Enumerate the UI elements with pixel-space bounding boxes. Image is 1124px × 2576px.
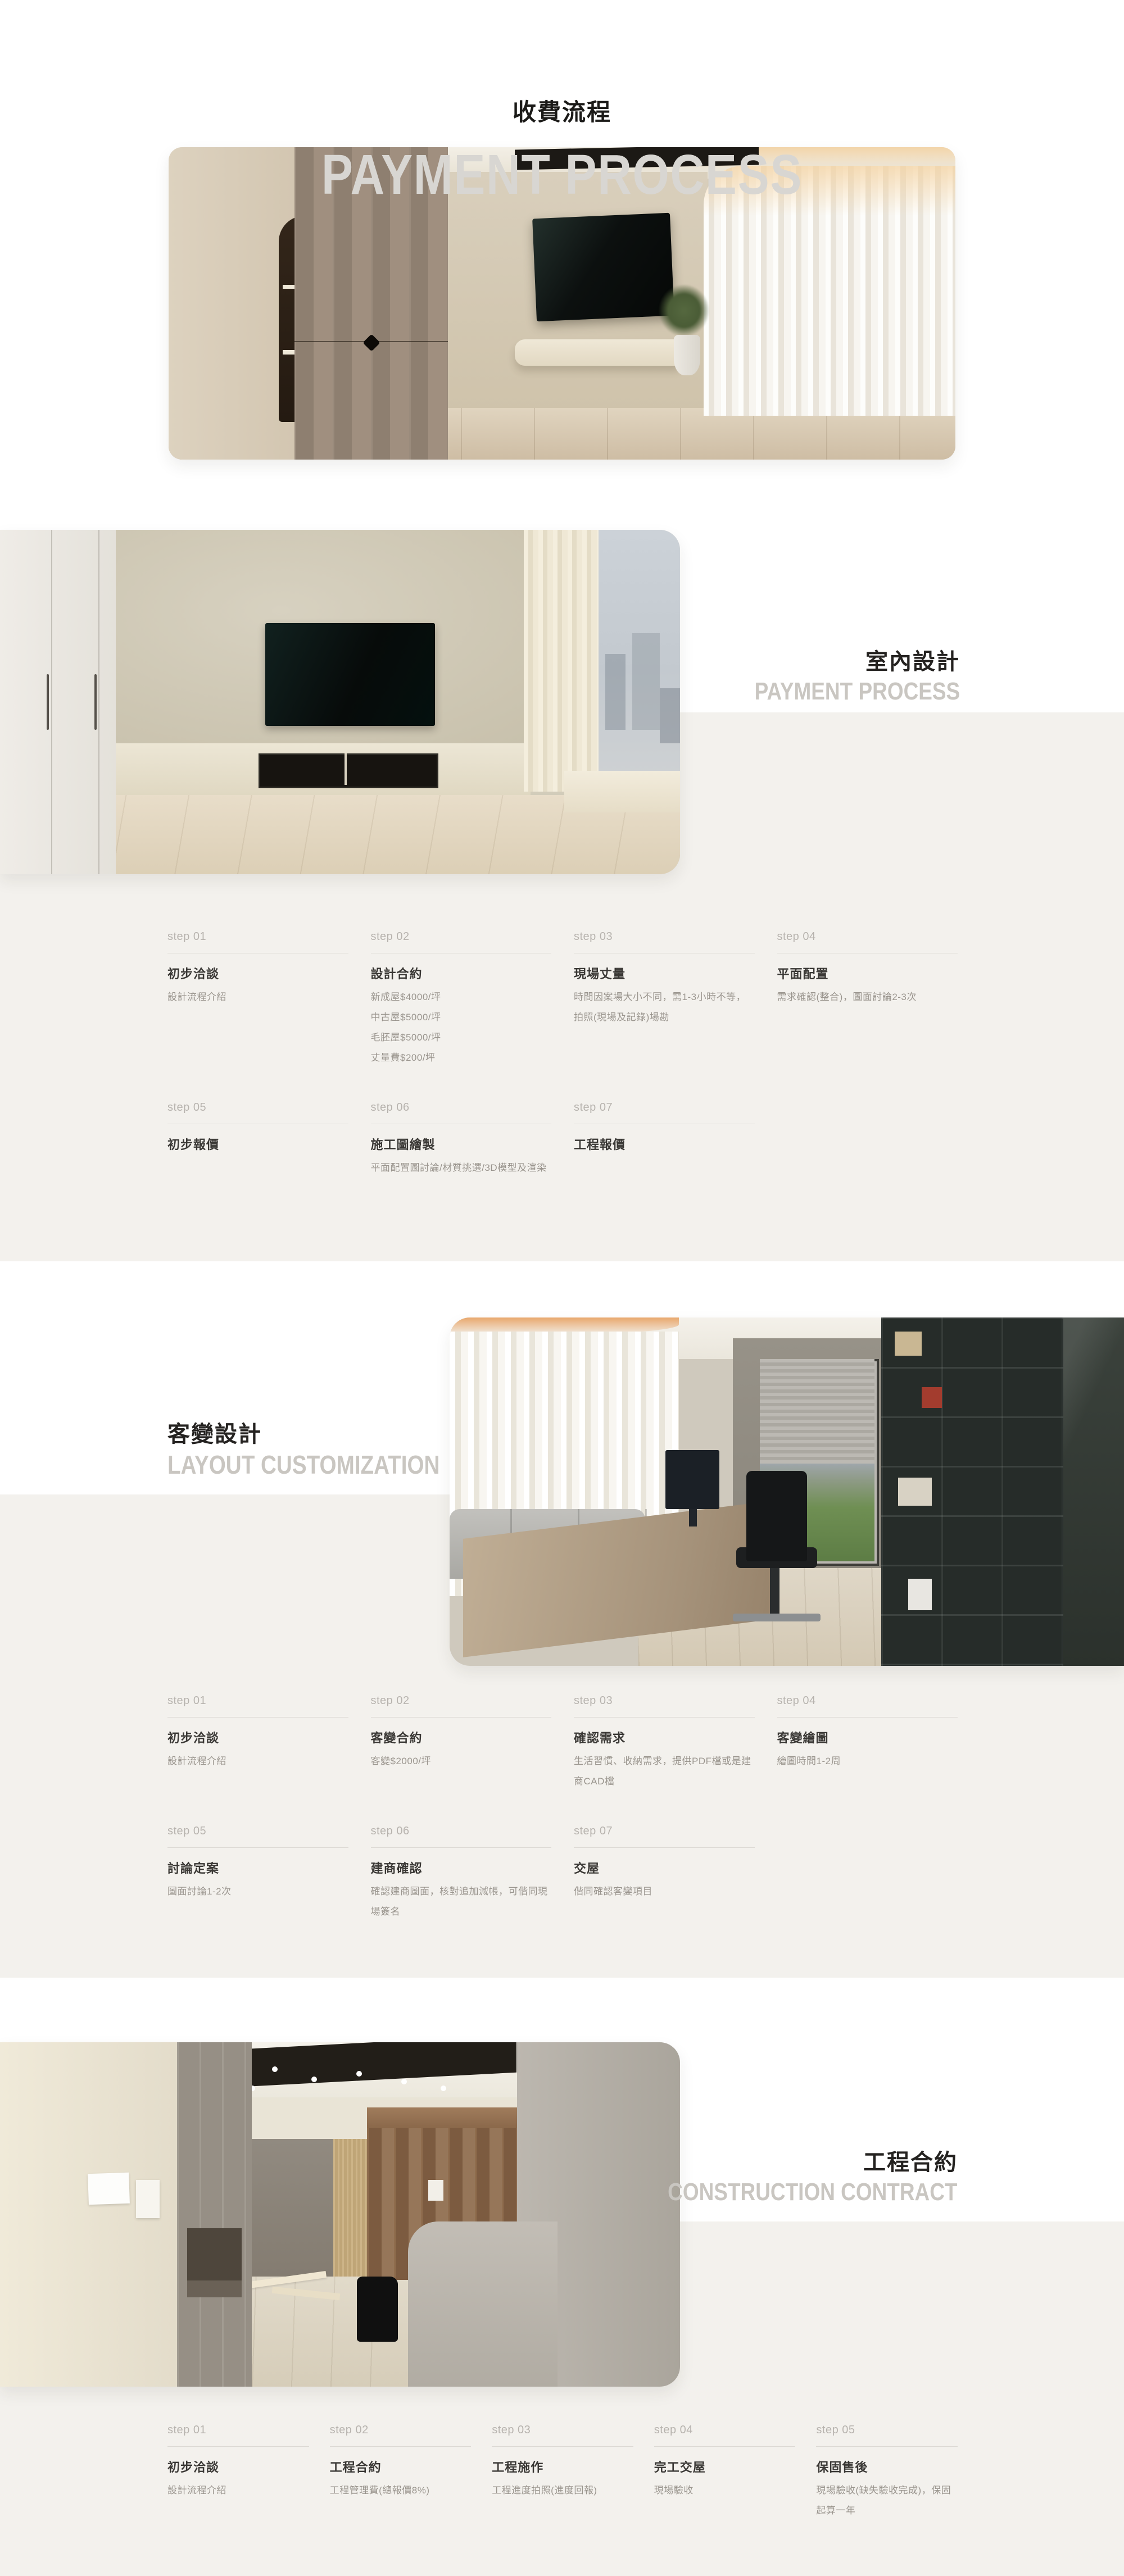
step-card: step 04 客變繪圖 繪圖時間1-2周 <box>777 1694 958 1771</box>
step-description-line: 毛胚屋$5000/坪 <box>371 1028 552 1048</box>
step-description: 設計流程介紹 <box>167 2480 309 2501</box>
step-description: 現場驗收 <box>654 2480 796 2501</box>
step-description: 時間因案場大小不同，需1-3小時不等，拍照(現場及記錄)場勘 <box>574 987 755 1028</box>
step-divider-line <box>371 953 552 953</box>
step-number-label: step 01 <box>167 2423 309 2437</box>
step-description-line: 圖面討論1-2次 <box>167 1882 348 1902</box>
photo-building-silhouette <box>632 633 659 730</box>
step-number-label: step 02 <box>371 930 552 943</box>
step-description-line: 新成屋$4000/坪 <box>371 987 552 1007</box>
step-title: 初步洽談 <box>167 966 348 983</box>
photo-honeycomb-blind <box>760 1359 874 1464</box>
step-description: 客變$2000/坪 <box>371 1751 552 1771</box>
step-number-label: step 02 <box>371 1694 552 1707</box>
section-title-block: 工程合約 CONSTRUCTION CONTRACT <box>613 2150 958 2205</box>
step-divider-line <box>574 1847 755 1848</box>
interior-design-photo <box>0 530 680 874</box>
step-card: step 02 客變合約 客變$2000/坪 <box>371 1694 552 1771</box>
photo-wall-tv <box>265 623 436 726</box>
photo-gray-cabinet <box>177 2042 252 2387</box>
photo-wood-slats <box>333 2139 368 2277</box>
step-description-line: 丈量費$200/坪 <box>371 1048 552 1068</box>
photo-curtain <box>524 530 599 792</box>
step-number-label: step 07 <box>574 1824 755 1838</box>
photo-curved-partition <box>408 2221 558 2387</box>
step-title: 確認需求 <box>574 1730 755 1747</box>
step-title: 保固售後 <box>816 2459 958 2476</box>
construction-contract-photo <box>0 2042 680 2387</box>
step-number-label: step 07 <box>574 1101 755 1114</box>
step-number-label: step 03 <box>574 930 755 943</box>
step-description-line: 確認建商圖面，核對追加減帳，可偕同現場簽名 <box>371 1882 552 1922</box>
step-description-line: 生活習慣、收納需求，提供PDF檔或是建商CAD檔 <box>574 1751 755 1792</box>
section-title-block: 客變設計 LAYOUT CUSTOMIZATION <box>167 1421 492 1478</box>
step-description: 偕同確認客變項目 <box>574 1882 755 1902</box>
step-description-line: 時間因案場大小不同，需1-3小時不等，拍照(現場及記錄)場勘 <box>574 987 755 1028</box>
section-layout-customization: 客變設計 LAYOUT CUSTOMIZATION step 01 初步洽談 設… <box>0 1315 1124 1978</box>
step-description: 工程進度拍照(進度回報) <box>492 2480 633 2501</box>
step-number-label: step 06 <box>371 1101 552 1114</box>
step-divider-line <box>371 1847 552 1848</box>
step-description-line: 工程管理費(總報價8%) <box>330 2480 472 2501</box>
page-subtitle-en: PAYMENT PROCESS <box>90 143 1034 207</box>
step-card: step 06 施工圖繪製 平面配置圖討論/材質挑選/3D模型及渲染 <box>371 1101 552 1178</box>
step-description: 繪圖時間1-2周 <box>777 1751 958 1771</box>
step-divider-line <box>167 2446 309 2447</box>
photo-cabinet-shelf <box>187 2228 242 2297</box>
step-card: step 07 工程報價 <box>574 1101 755 1158</box>
photo-shelf-object <box>908 1579 932 1610</box>
step-number-label: step 02 <box>330 2423 472 2437</box>
step-description-line: 設計流程介紹 <box>167 987 348 1007</box>
section-title-en: PAYMENT PROCESS <box>754 679 960 704</box>
step-number-label: step 04 <box>777 930 958 943</box>
step-divider-line <box>492 2446 633 2447</box>
step-number-label: step 03 <box>574 1694 755 1707</box>
steps-grid-construction-contract: step 01 初步洽談 設計流程介紹 step 02 工程合約 工程管理費(總… <box>167 2423 958 2521</box>
step-card: step 07 交屋 偕同確認客變項目 <box>574 1824 755 1902</box>
step-title: 工程施作 <box>492 2459 633 2476</box>
step-number-label: step 04 <box>654 2423 796 2437</box>
photo-office-chair <box>746 1471 807 1561</box>
step-description: 工程管理費(總報價8%) <box>330 2480 472 2501</box>
photo-glass-door <box>1063 1317 1124 1666</box>
photo-building-silhouette <box>605 654 626 730</box>
section-title-zh: 工程合約 <box>863 2150 958 2175</box>
hero-plant-pot <box>674 335 701 375</box>
step-number-label: step 03 <box>492 2423 633 2437</box>
layout-customization-photo <box>450 1317 1124 1666</box>
section-construction-contract: 工程合約 CONSTRUCTION CONTRACT step 01 初步洽談 … <box>0 2039 1124 2576</box>
photo-wardrobe-seam <box>51 530 52 874</box>
step-title: 客變繪圖 <box>777 1730 958 1747</box>
section-title-block: 室內設計 PAYMENT PROCESS <box>715 649 960 704</box>
step-description: 圖面討論1-2次 <box>167 1882 348 1902</box>
photo-gray-wardrobe <box>252 2139 333 2277</box>
step-divider-line <box>777 953 958 953</box>
photo-glass-cabinet <box>259 753 439 788</box>
step-title: 初步洽談 <box>167 1730 348 1747</box>
step-number-label: step 05 <box>167 1101 348 1114</box>
step-divider-line <box>777 1717 958 1718</box>
step-title: 平面配置 <box>777 966 958 983</box>
step-divider-line <box>574 1124 755 1124</box>
step-number-label: step 06 <box>371 1824 552 1838</box>
step-title: 客變合約 <box>371 1730 552 1747</box>
step-title: 完工交屋 <box>654 2459 796 2476</box>
step-card: step 05 保固售後 現場驗收(缺失驗收完成)，保固起算一年 <box>816 2423 958 2521</box>
step-title: 初步洽談 <box>167 2459 309 2476</box>
step-description: 新成屋$4000/坪中古屋$5000/坪毛胚屋$5000/坪丈量費$200/坪 <box>371 987 552 1068</box>
steps-grid-layout-customization: step 01 初步洽談 設計流程介紹 step 02 客變合約 客變$2000… <box>167 1694 958 1922</box>
steps-grid-interior-design: step 01 初步洽談 設計流程介紹 step 02 設計合約 新成屋$400… <box>167 930 958 1178</box>
step-description-line: 平面配置圖討論/材質挑選/3D模型及渲染 <box>371 1158 552 1178</box>
step-card: step 03 現場丈量 時間因案場大小不同，需1-3小時不等，拍照(現場及記錄… <box>574 930 755 1028</box>
photo-shelf-object <box>922 1387 942 1408</box>
step-title: 工程報價 <box>574 1137 755 1153</box>
photo-building-silhouette <box>660 688 680 743</box>
photo-black-backpack <box>357 2277 398 2342</box>
step-divider-line <box>167 953 348 953</box>
step-description: 設計流程介紹 <box>167 987 348 1007</box>
photo-cabinet-divider <box>345 753 347 784</box>
section-title-en: LAYOUT CUSTOMIZATION <box>167 1452 439 1478</box>
step-description-line: 現場驗收(缺失驗收完成)，保固起算一年 <box>816 2480 958 2521</box>
step-divider-line <box>167 1124 348 1124</box>
photo-taped-drawing <box>88 2173 129 2205</box>
step-divider-line <box>371 1717 552 1718</box>
step-title: 討論定案 <box>167 1860 348 1877</box>
step-description: 需求確認(整合)，圖面討論2-3次 <box>777 987 958 1007</box>
step-description-line: 中古屋$5000/坪 <box>371 1007 552 1028</box>
step-title: 初步報價 <box>167 1137 348 1153</box>
step-divider-line <box>574 1717 755 1718</box>
section-title-zh: 客變設計 <box>167 1421 262 1447</box>
step-number-label: step 01 <box>167 930 348 943</box>
step-card: step 05 初步報價 <box>167 1101 348 1158</box>
step-card: step 04 平面配置 需求確認(整合)，圖面討論2-3次 <box>777 930 958 1007</box>
step-description-line: 客變$2000/坪 <box>371 1751 552 1771</box>
step-card: step 04 完工交屋 現場驗收 <box>654 2423 796 2501</box>
photo-monitor <box>665 1450 719 1509</box>
step-card: step 03 工程施作 工程進度拍照(進度回報) <box>492 2423 633 2501</box>
step-card: step 01 初步洽談 設計流程介紹 <box>167 930 348 1007</box>
photo-monitor-stand <box>689 1509 697 1526</box>
photo-shelf-object <box>898 1478 932 1506</box>
photo-chair-base <box>733 1614 821 1621</box>
photo-taped-drawing <box>136 2180 160 2218</box>
step-number-label: step 05 <box>167 1824 348 1838</box>
step-description-line: 設計流程介紹 <box>167 1751 348 1771</box>
step-divider-line <box>574 953 755 953</box>
step-description: 生活習慣、收納需求，提供PDF檔或是建商CAD檔 <box>574 1751 755 1792</box>
step-title: 現場丈量 <box>574 966 755 983</box>
section-interior-design: 室內設計 PAYMENT PROCESS step 01 初步洽談 設計流程介紹… <box>0 528 1124 1261</box>
step-title: 設計合約 <box>371 966 552 983</box>
section-title-en: CONSTRUCTION CONTRACT <box>668 2180 958 2205</box>
step-description-line: 設計流程介紹 <box>167 2480 309 2501</box>
step-number-label: step 05 <box>816 2423 958 2437</box>
step-title: 交屋 <box>574 1860 755 1877</box>
step-number-label: step 01 <box>167 1694 348 1707</box>
step-description: 平面配置圖討論/材質挑選/3D模型及渲染 <box>371 1158 552 1178</box>
photo-wardrobe-handle <box>47 674 49 729</box>
step-card: step 01 初步洽談 設計流程介紹 <box>167 1694 348 1771</box>
step-description: 設計流程介紹 <box>167 1751 348 1771</box>
step-title: 施工圖繪製 <box>371 1137 552 1153</box>
step-card: step 05 討論定案 圖面討論1-2次 <box>167 1824 348 1902</box>
photo-sticker-label <box>428 2180 443 2201</box>
photo-window-bench <box>564 771 680 812</box>
step-number-label: step 04 <box>777 1694 958 1707</box>
step-divider-line <box>816 2446 958 2447</box>
section-title-zh: 室內設計 <box>865 649 960 675</box>
step-divider-line <box>371 1124 552 1124</box>
photo-wardrobe-handle <box>94 674 97 729</box>
step-divider-line <box>167 1717 348 1718</box>
step-card: step 03 確認需求 生活習慣、收納需求，提供PDF檔或是建商CAD檔 <box>574 1694 755 1792</box>
step-description: 確認建商圖面，核對追加減帳，可偕同現場簽名 <box>371 1882 552 1922</box>
step-divider-line <box>654 2446 796 2447</box>
payment-process-page: 收費流程 PAYMENT PROCESS <box>0 0 1124 2576</box>
photo-downlights <box>272 2066 278 2072</box>
step-title: 工程合約 <box>330 2459 472 2476</box>
step-card: step 06 建商確認 確認建商圖面，核對追加減帳，可偕同現場簽名 <box>371 1824 552 1922</box>
step-description: 現場驗收(缺失驗收完成)，保固起算一年 <box>816 2480 958 2521</box>
step-description-line: 繪圖時間1-2周 <box>777 1751 958 1771</box>
step-card: step 02 設計合約 新成屋$4000/坪中古屋$5000/坪毛胚屋$500… <box>371 930 552 1068</box>
photo-shelf-object <box>895 1332 922 1356</box>
step-description-line: 需求確認(整合)，圖面討論2-3次 <box>777 987 958 1007</box>
step-description-line: 偕同確認客變項目 <box>574 1882 755 1902</box>
page-title: 收費流程 <box>0 93 1124 128</box>
step-divider-line <box>167 1847 348 1848</box>
step-description-line: 現場驗收 <box>654 2480 796 2501</box>
photo-chair-post <box>770 1568 779 1617</box>
photo-walnut-top-panel <box>367 2107 530 2128</box>
step-divider-line <box>330 2446 472 2447</box>
step-title: 建商確認 <box>371 1860 552 1877</box>
photo-wardrobe-seam <box>98 530 99 874</box>
step-description-line: 工程進度拍照(進度回報) <box>492 2480 633 2501</box>
step-card: step 01 初步洽談 設計流程介紹 <box>167 2423 309 2501</box>
step-card: step 02 工程合約 工程管理費(總報價8%) <box>330 2423 472 2501</box>
